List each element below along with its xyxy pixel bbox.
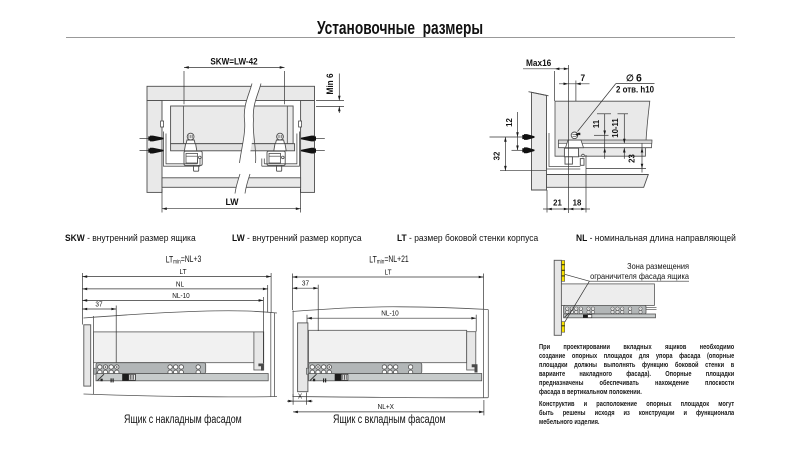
svg-text:10-11: 10-11	[611, 118, 620, 138]
svg-text:32: 32	[492, 151, 501, 160]
svg-text:12: 12	[505, 118, 514, 127]
svg-text:23: 23	[627, 154, 636, 163]
svg-text:LTmin=NL+3: LTmin=NL+3	[166, 254, 202, 266]
svg-text:37: 37	[95, 301, 102, 308]
svg-text:2 отв. h10: 2 отв. h10	[616, 84, 654, 95]
svg-text:NL-10: NL-10	[172, 293, 190, 300]
svg-text:NL: NL	[176, 281, 184, 288]
svg-text:LT: LT	[384, 269, 391, 276]
svg-text:SKW=LW-42: SKW=LW-42	[210, 56, 257, 67]
svg-text:11: 11	[592, 119, 601, 128]
svg-text:Зона размещения: Зона размещения	[627, 262, 689, 272]
svg-text:6: 6	[636, 72, 642, 84]
svg-text:X: X	[298, 393, 303, 400]
svg-text:LT: LT	[179, 269, 186, 276]
svg-text:ограничителя фасада ящика: ограничителя фасада ящика	[590, 271, 689, 281]
svg-text:18: 18	[573, 198, 582, 207]
svg-text:Min 6: Min 6	[325, 73, 335, 94]
svg-text:21: 21	[553, 198, 562, 207]
svg-text:Max16: Max16	[526, 58, 551, 68]
svg-text:7: 7	[581, 73, 586, 83]
svg-text:∅: ∅	[626, 73, 634, 83]
svg-text:LW: LW	[225, 197, 238, 207]
svg-text:NL-10: NL-10	[381, 310, 399, 317]
svg-text:37: 37	[302, 280, 309, 287]
svg-text:LTmin=NL+21: LTmin=NL+21	[369, 254, 408, 266]
svg-text:NL+X: NL+X	[378, 404, 395, 411]
